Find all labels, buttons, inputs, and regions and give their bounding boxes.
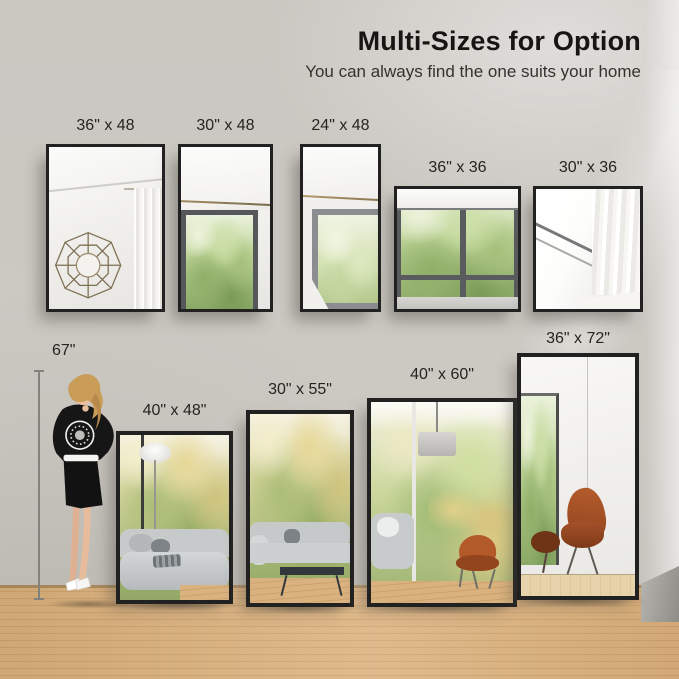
mirror-30x48-wall [178,144,273,312]
size-label-30x36-wall: 30" x 36 [533,159,643,177]
size-label-30x48-wall: 30" x 48 [178,117,273,135]
pendant-lamp [418,432,456,456]
mirror-reflection [49,147,162,309]
coffee-table [280,567,344,575]
mirror-reflection [521,357,635,596]
mirror-reflection [536,189,640,309]
header: Multi-Sizes for Option You can always fi… [305,26,641,82]
lounge-chair-seat [456,555,499,571]
mirror-36x72-floor [517,353,639,600]
sheer-curtain-reflection [592,189,640,295]
size-label-36x48-wall: 36" x 48 [46,117,165,135]
mirror-reflection [250,414,350,603]
sofa-pillow [129,534,153,552]
window-sill-reflection [397,297,518,309]
curtain-rod-reflection [303,195,378,201]
size-label-36x36-wall: 36" x 36 [394,159,521,177]
mirror-reflection [181,147,270,309]
window-reflection [181,210,258,309]
size-label-30x55-floor: 30" x 55" [246,381,354,399]
sunburst-decor-icon [52,228,124,303]
page-subtitle: You can always find the one suits your h… [305,62,641,82]
mirror-reflection [371,402,513,603]
window-reflection [312,209,378,309]
model-figure [36,362,122,606]
mirror-40x60-floor [367,398,517,607]
window-mullion-vertical [460,208,466,297]
curtain-rod-reflection [181,200,270,206]
mirror-30x55-floor [246,410,354,607]
sofa-pillow [377,517,400,537]
mirror-36x48-wall [46,144,165,312]
wood-floor-reflection [180,585,229,600]
size-label-36x72-floor: 36" x 72" [517,330,639,348]
size-label-40x48-floor: 40" x 48" [116,402,233,420]
mirror-reflection [397,189,518,309]
wall-column-reflection [258,210,270,309]
chair-leg [587,546,598,574]
mirror-36x36-wall [394,186,521,312]
size-label-40x60-floor: 40" x 60" [367,366,517,384]
page-title: Multi-Sizes for Option [305,26,641,57]
pendant-lamp-cord [436,402,438,432]
valance-reflection [397,189,518,210]
ottoman [531,531,560,553]
chair-leg [567,546,578,574]
size-label-24x48-wall: 24" x 48 [300,117,381,135]
mirror-24x48-wall [300,144,381,312]
floor-lamp-pole [154,460,156,533]
wood-floor-reflection [250,578,350,603]
window-frame-reflection [397,208,518,297]
product-size-diagram: Multi-Sizes for Option You can always fi… [0,0,679,679]
wood-floor-reflection [521,574,635,597]
mirror-30x36-wall [533,186,643,312]
height-label: 67" [52,342,92,360]
window-mullion-horizontal [397,275,518,280]
wood-floor-reflection [371,581,513,603]
mirror-reflection [120,435,229,600]
sofa-seat [250,543,350,564]
leather-chair-seat [561,522,604,548]
mirror-40x48-floor [116,431,233,604]
mirror-reflection [303,147,378,309]
autumn-bushes [428,490,513,538]
wall-edge-light [645,0,679,600]
sheer-curtain-reflection [134,188,162,310]
